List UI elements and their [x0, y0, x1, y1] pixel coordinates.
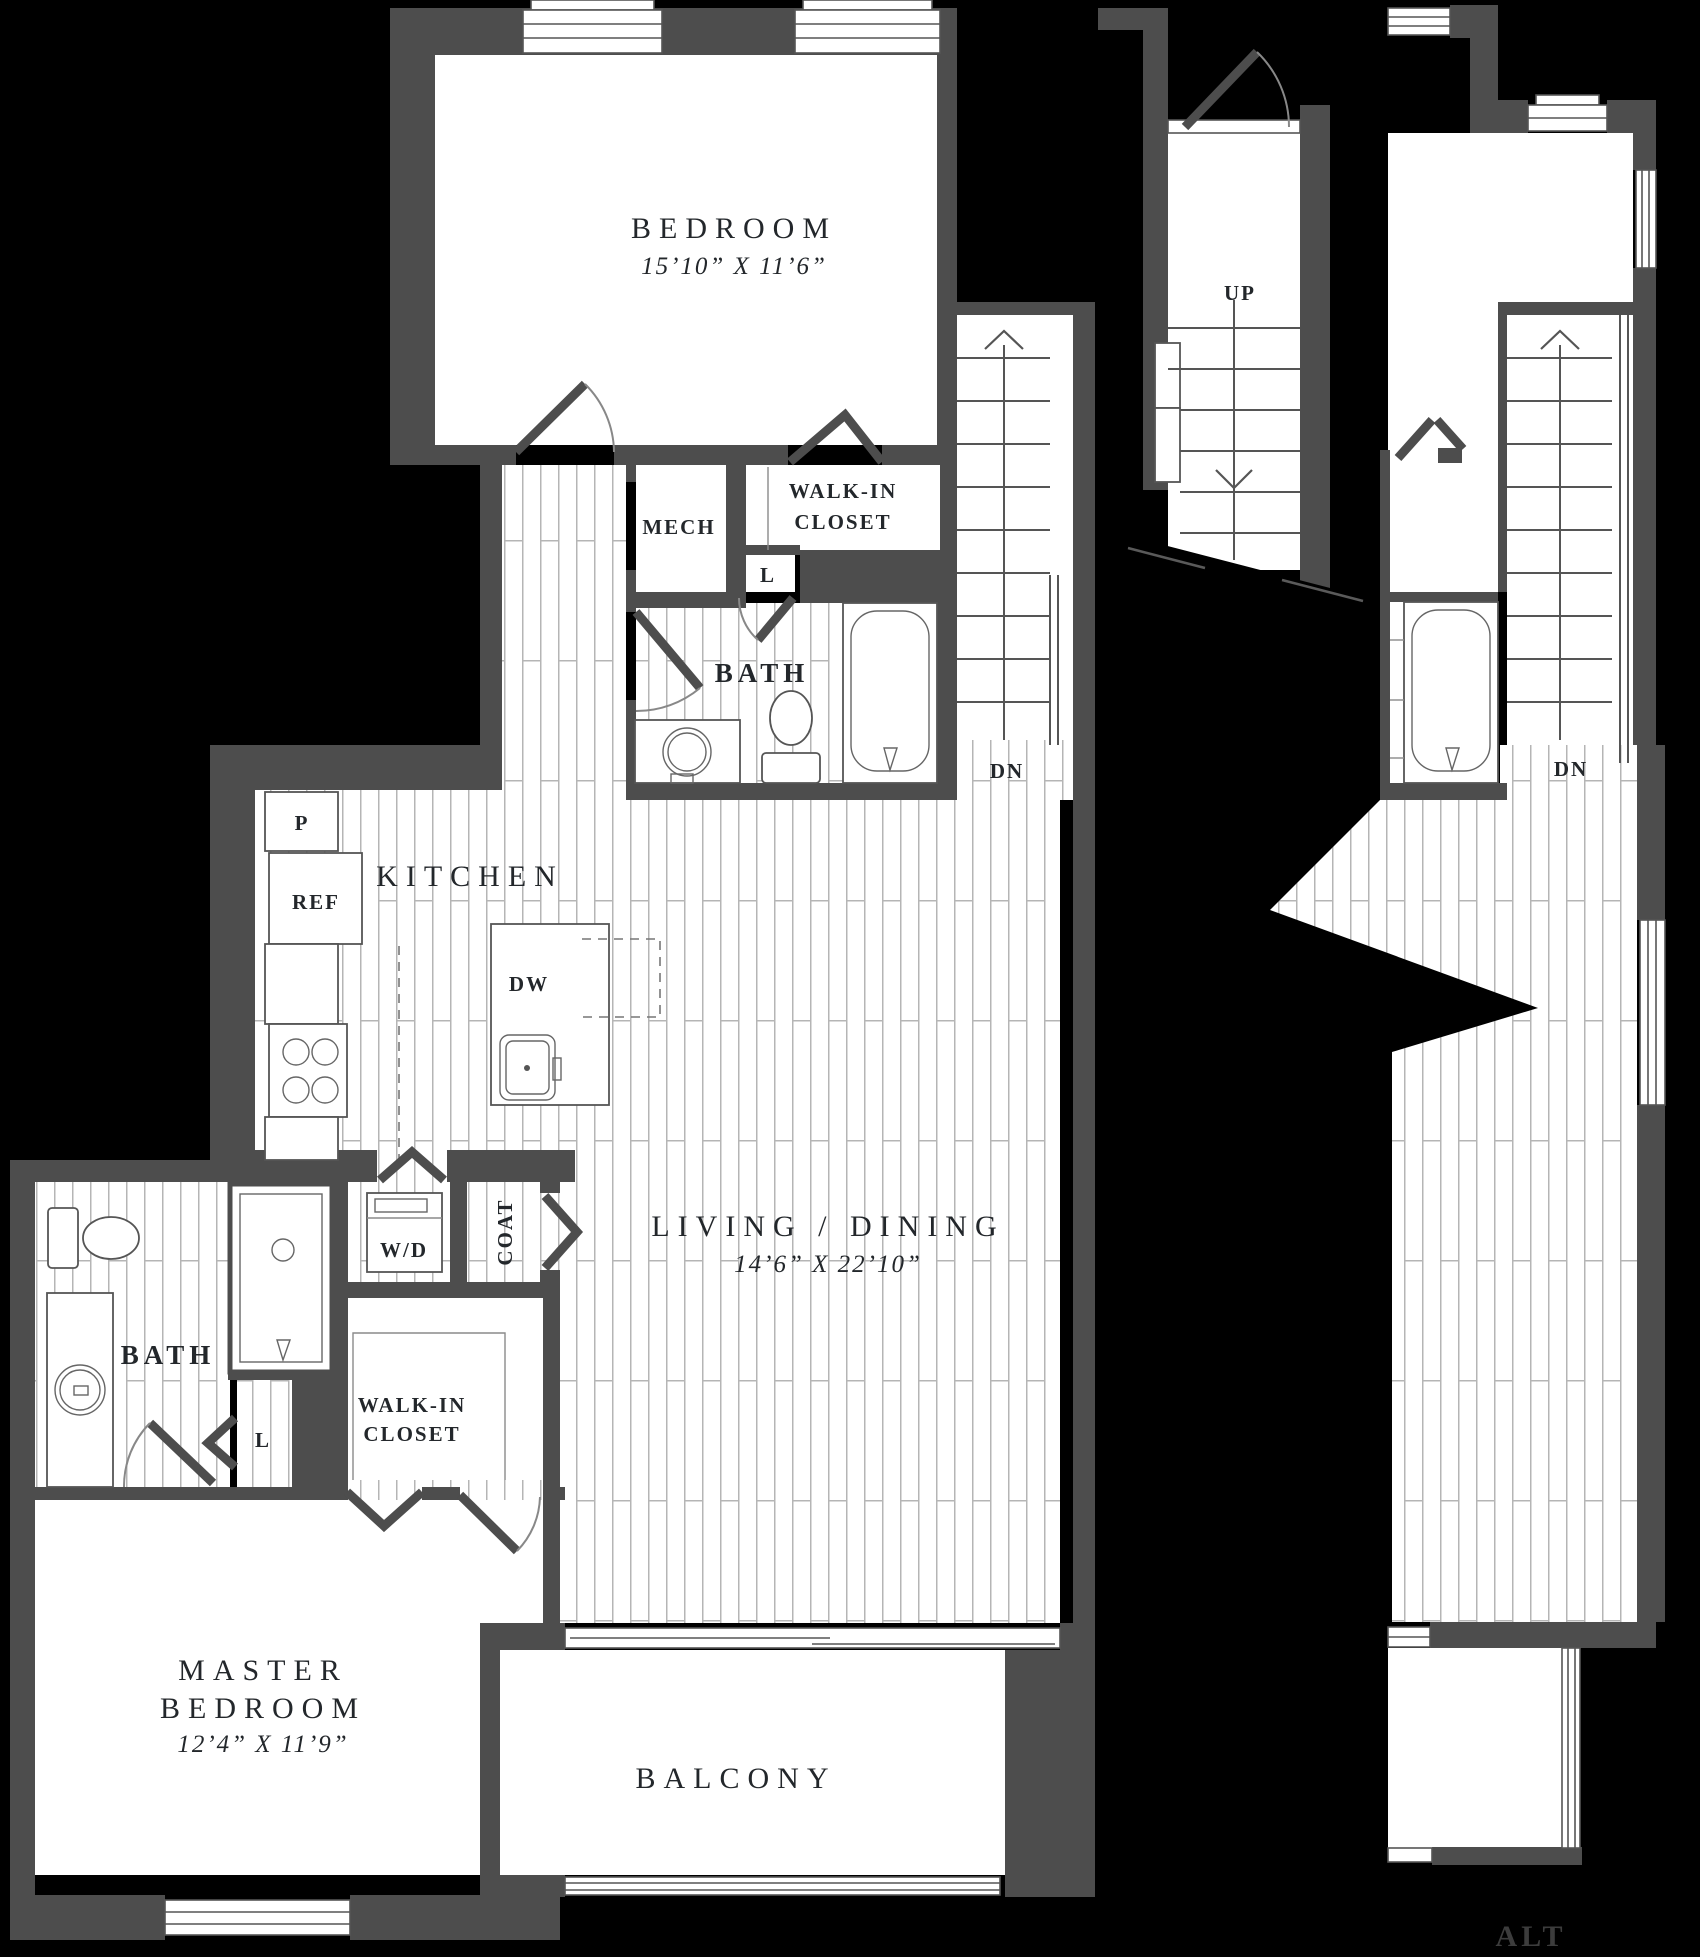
bedroom-dims: 15’10” X 11’6”	[641, 253, 827, 280]
living-dining-label: LIVING / DINING	[651, 1210, 1004, 1243]
walk-in-closet-upper-label-2: CLOSET	[794, 510, 891, 534]
kitchen-island	[491, 924, 609, 1105]
laundry-label: W/D	[380, 1238, 428, 1262]
floorplan-drawing: BEDROOM 15’10” X 11’6” MECH WALK-IN CLOS…	[0, 0, 1700, 1957]
alt-room-area	[1388, 133, 1633, 302]
coat-label: COAT	[493, 1198, 517, 1265]
pantry-label: P	[295, 811, 310, 835]
hallway-floor	[502, 465, 626, 790]
stove-icon	[269, 1024, 347, 1117]
alt-balcony-window	[1388, 1848, 1432, 1862]
stairs-dn-label: DN	[990, 759, 1024, 783]
bedroom-area	[435, 55, 937, 445]
stair-niche	[1155, 343, 1180, 408]
alt-balcony-area	[1388, 1648, 1580, 1848]
toilet-tank	[48, 1208, 78, 1268]
toilet-tank	[762, 753, 820, 783]
window-sill	[1536, 95, 1599, 105]
floorplan-page: BEDROOM 15’10” X 11’6” MECH WALK-IN CLOS…	[0, 0, 1700, 1957]
alt-tag: ALT	[1496, 1920, 1567, 1953]
toilet-icon	[83, 1217, 139, 1259]
bedroom-label: BEDROOM	[631, 212, 837, 245]
alt-window	[1388, 8, 1450, 35]
master-bedroom-window	[165, 1900, 350, 1935]
linen-master-label: L	[255, 1428, 271, 1452]
linen-upper-label: L	[760, 563, 776, 587]
living-dining-dims: 14’6” X 22’10”	[734, 1251, 922, 1278]
kitchen-label: KITCHEN	[376, 860, 564, 893]
master-bedroom-label-1: MASTER	[178, 1654, 348, 1687]
bath-upper-label: BATH	[715, 658, 810, 688]
master-bedroom-dims: 12’4” X 11’9”	[177, 1731, 348, 1758]
bathtub-icon	[843, 603, 937, 783]
walk-in-closet-upper-area	[746, 465, 940, 550]
stairs-main-area	[957, 315, 1073, 740]
stair-niche	[1155, 408, 1180, 482]
alt-stairs-dn-label: DN	[1554, 757, 1588, 781]
walk-in-closet-master-area	[348, 1298, 543, 1480]
balcony-label: BALCONY	[635, 1762, 836, 1795]
counter	[265, 944, 338, 1024]
shower-icon	[230, 1184, 332, 1372]
refrigerator-label: REF	[292, 890, 340, 914]
walk-in-closet-upper-label-1: WALK-IN	[789, 479, 898, 503]
bath-master-label: BATH	[121, 1340, 216, 1370]
counter	[265, 1117, 338, 1160]
drain-icon	[524, 1065, 530, 1071]
bedroom-window-left	[523, 10, 662, 53]
walk-in-closet-master-label-2: CLOSET	[363, 1422, 460, 1446]
bathtub-icon	[1404, 602, 1498, 783]
window-sill	[803, 0, 932, 10]
alt-balcony-railing	[1562, 1648, 1580, 1848]
alt-window	[1640, 920, 1665, 1105]
alt-window	[1636, 170, 1656, 268]
vanity	[47, 1293, 113, 1487]
window-sill	[531, 0, 654, 10]
stairs-up-label: UP	[1224, 281, 1256, 305]
toilet-icon	[770, 691, 812, 745]
master-bedroom-label-2: BEDROOM	[160, 1692, 366, 1725]
mech-label: MECH	[642, 515, 715, 539]
balcony-railing	[565, 1877, 1000, 1895]
bedroom-window-right	[795, 10, 940, 53]
master-bedroom-area	[35, 1500, 543, 1875]
walk-in-closet-master-label-1: WALK-IN	[358, 1393, 467, 1417]
dishwasher-label: DW	[509, 972, 549, 996]
